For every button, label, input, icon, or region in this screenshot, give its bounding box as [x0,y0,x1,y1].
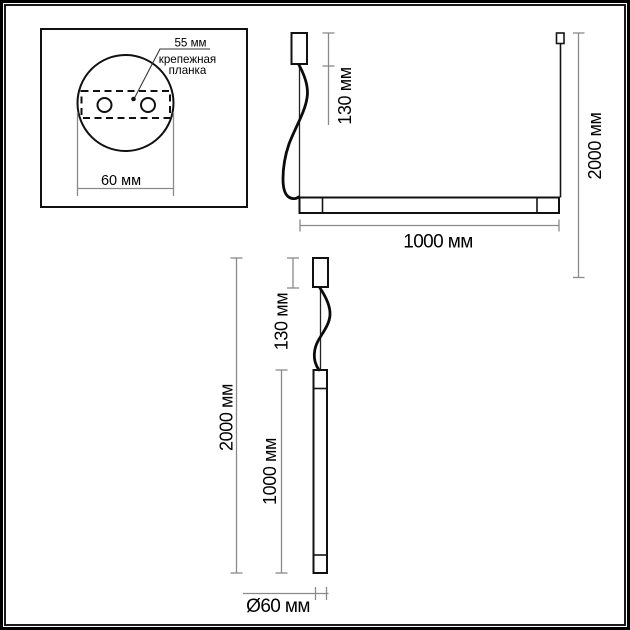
canopy-width-label: 60 мм [101,173,141,189]
canopy-box [292,33,308,64]
tube-diameter-label: Ø60 мм [246,596,310,617]
overall-height-label: 2000 мм [216,384,236,451]
canopy-height-label-v: 130 мм [271,293,291,350]
light-tube [314,370,328,573]
light-bar [300,198,560,214]
vertical-fixture-view: 2000 мм 130 мм 1000 мм Ø60 мм [216,258,330,617]
tube-length-label: 1000 мм [260,438,280,505]
mounting-plate-label-line2: планка [169,64,207,77]
bar-length-label: 1000 мм [403,232,472,253]
canopy-box-v [313,258,328,287]
mount-detail-panel: 55 мм крепежная планка 60 мм [41,29,247,207]
power-wire-curve [283,65,308,199]
horizontal-fixture-view: 130 мм 2000 мм 1000 мм [283,33,605,278]
fixture-dimension-drawing: 55 мм крепежная планка 60 мм 130 мм [0,0,630,630]
canopy-circle [78,55,174,151]
mounting-plate-dashed-outline [82,91,171,118]
canopy-height-label: 130 мм [335,67,355,124]
power-wire-curve-v [314,288,330,370]
max-suspension-label: 2000 мм [585,112,605,179]
cable-grip-connector [557,33,565,44]
screw-hole-left [98,98,112,112]
hole-spacing-label: 55 мм [174,37,206,50]
screw-hole-right [141,98,155,112]
dimension-drawing-page: 55 мм крепежная планка 60 мм 130 мм [0,0,630,630]
